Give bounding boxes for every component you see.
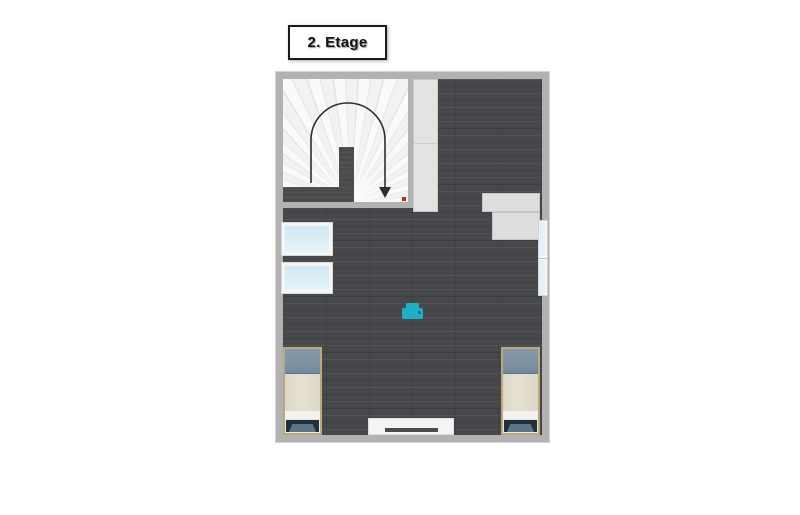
printer-icon[interactable] [402, 303, 424, 320]
interior-wall-horizontal [276, 202, 413, 208]
bed-right-mattress [503, 349, 538, 433]
bed-left[interactable] [283, 347, 322, 435]
wardrobe[interactable] [413, 79, 438, 212]
bed-left-sheet [285, 411, 320, 419]
bed-right-pillow [503, 349, 538, 374]
bed-left-pillow [285, 349, 320, 374]
dresser-handle-bar [385, 428, 438, 432]
floor-label: 2. Etage [288, 25, 387, 60]
staircase[interactable] [283, 79, 408, 202]
skylight-window-2[interactable] [282, 263, 332, 293]
window-divider [539, 258, 547, 259]
window-pane-top [540, 222, 546, 256]
bed-right-footboard [503, 419, 538, 433]
bed-left-blanket [285, 374, 320, 411]
floorplan [276, 72, 549, 442]
red-dot-icon [402, 197, 406, 201]
floorplan-canvas: 2. Etage [0, 0, 800, 515]
shelf-lower[interactable] [492, 212, 540, 240]
bed-left-mattress [285, 349, 320, 433]
bed-left-footboard [285, 419, 320, 433]
window-right-wall[interactable] [538, 220, 548, 296]
shelf-upper[interactable] [482, 193, 540, 212]
floor-label-text: 2. Etage [308, 34, 368, 51]
u-turn-arrow-down-icon [283, 79, 408, 202]
window-pane-bottom [540, 261, 546, 295]
bed-right-sheet [503, 411, 538, 419]
bed-right[interactable] [501, 347, 540, 435]
floorplan-interior [283, 79, 542, 435]
printer-button-dot [418, 311, 421, 314]
bed-right-footboard-pad [507, 424, 534, 432]
bed-right-blanket [503, 374, 538, 411]
dresser-bottom[interactable] [368, 418, 454, 435]
wardrobe-door-seam [414, 143, 437, 144]
skylight-window-1[interactable] [282, 223, 332, 255]
bed-left-footboard-pad [289, 424, 316, 432]
